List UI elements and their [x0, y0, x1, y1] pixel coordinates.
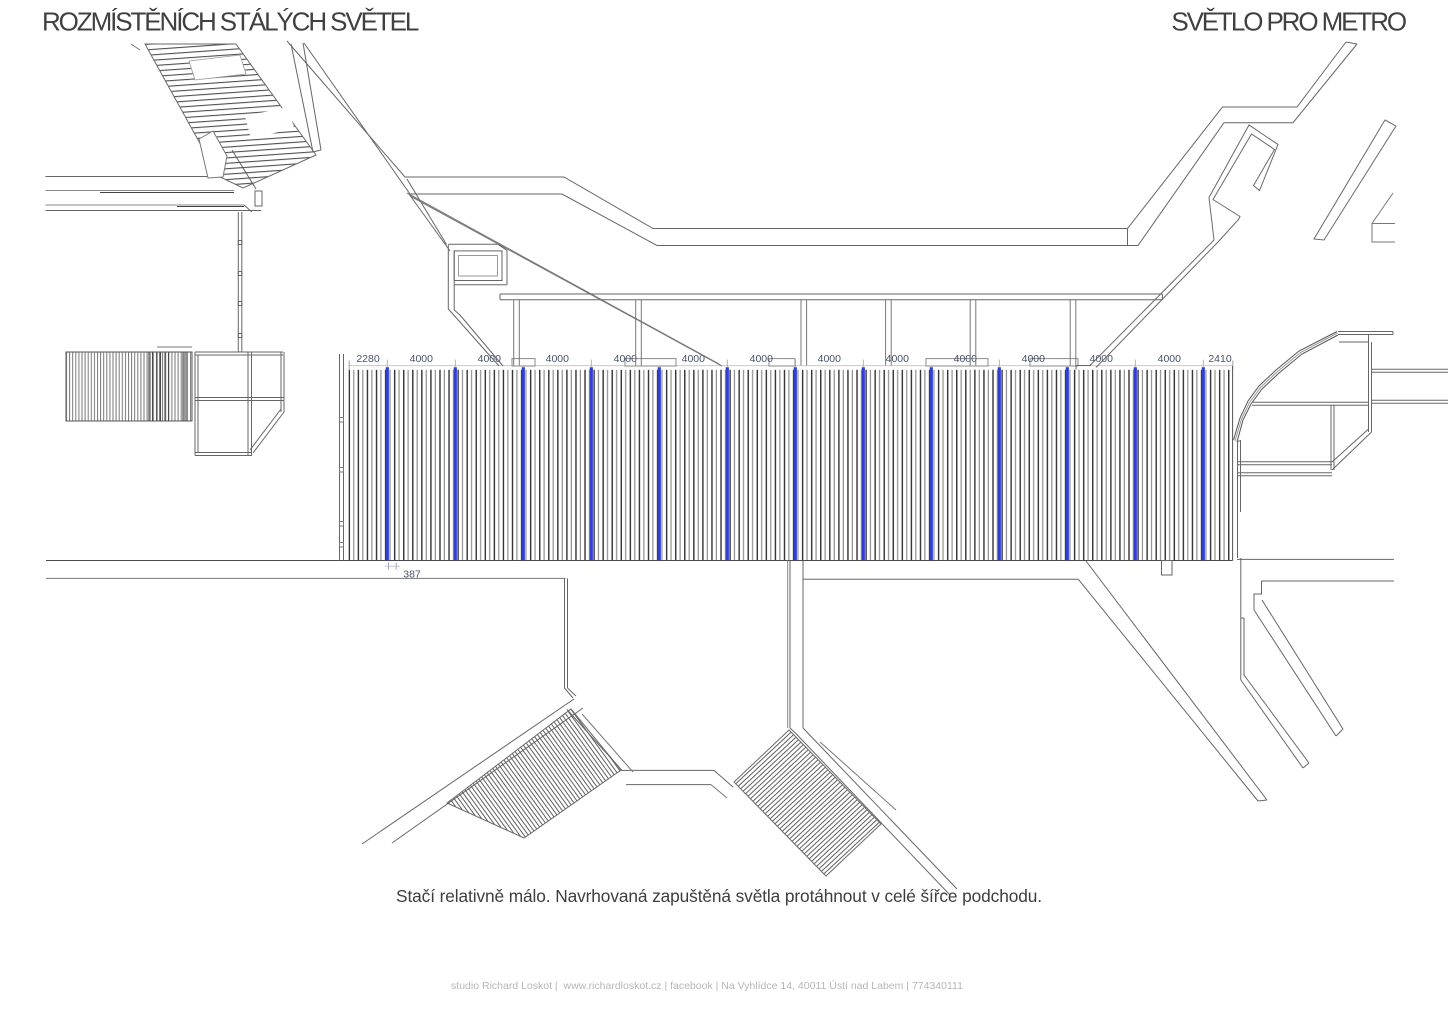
- svg-text:4000: 4000: [886, 353, 910, 365]
- svg-text:2410: 2410: [1208, 353, 1232, 365]
- svg-text:4000: 4000: [750, 353, 774, 365]
- svg-text:2280: 2280: [356, 353, 380, 365]
- svg-text:ROZMÍSTĚNÍCH STÁLÝCH SVĚTEL: ROZMÍSTĚNÍCH STÁLÝCH SVĚTEL: [42, 7, 419, 37]
- svg-text:4000: 4000: [1158, 353, 1182, 365]
- svg-text:4000: 4000: [1022, 353, 1046, 365]
- svg-text:4000: 4000: [410, 353, 434, 365]
- svg-text:4000: 4000: [818, 353, 842, 365]
- svg-text:4000: 4000: [546, 353, 570, 365]
- svg-text:4000: 4000: [614, 353, 638, 365]
- svg-text:Stačí relativně málo. Navrhova: Stačí relativně málo. Navrhovaná zapuště…: [396, 886, 1042, 906]
- svg-text:387: 387: [403, 569, 421, 581]
- svg-text:studio Richard Loskot | www.r: studio Richard Loskot | www.richardlosko…: [451, 979, 963, 992]
- svg-text:SVĚTLO PRO METRO: SVĚTLO PRO METRO: [1171, 7, 1406, 37]
- svg-text:4000: 4000: [954, 353, 978, 365]
